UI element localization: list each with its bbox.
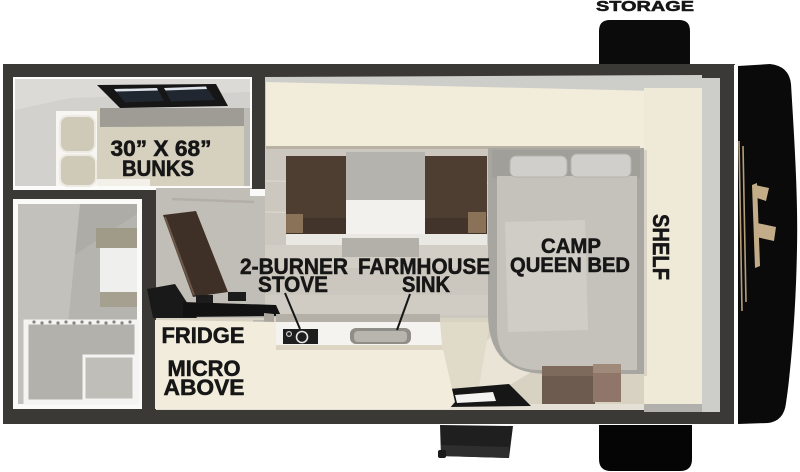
svg-text:ABOVE: ABOVE [164,375,245,400]
svg-text:SINK: SINK [402,272,450,297]
svg-text:SHELF: SHELF [648,214,674,280]
svg-text:STOVE: STOVE [258,272,328,297]
svg-text:STORAGE: STORAGE [596,0,694,15]
svg-text:QUEEN BED: QUEEN BED [510,254,630,277]
svg-text:BUNKS: BUNKS [122,156,194,181]
svg-text:FRIDGE: FRIDGE [162,323,245,348]
